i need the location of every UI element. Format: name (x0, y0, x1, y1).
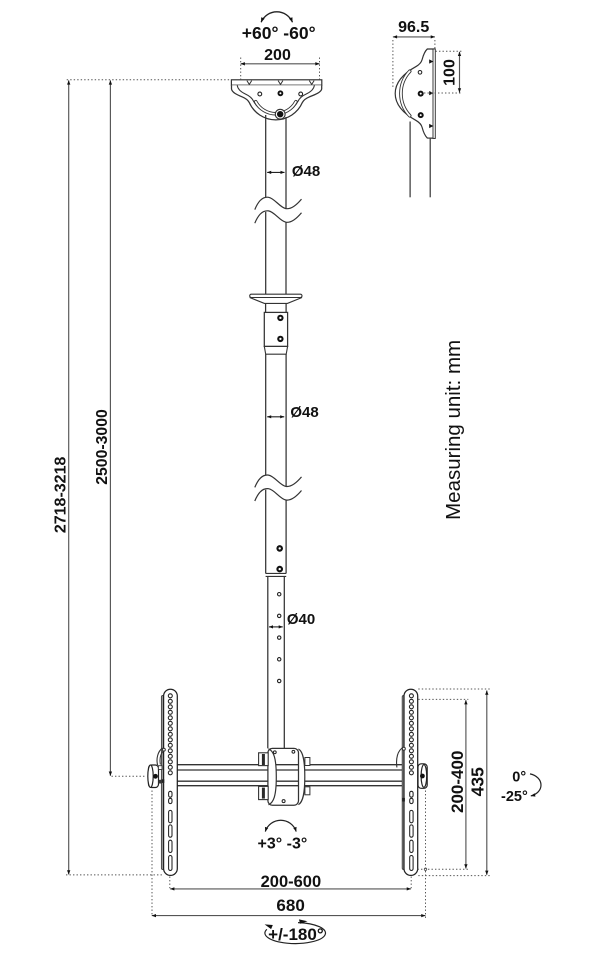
svg-text:100: 100 (442, 59, 459, 86)
svg-text:Measuring unit: mm: Measuring unit: mm (442, 340, 465, 520)
svg-text:435: 435 (468, 767, 488, 796)
svg-text:200-600: 200-600 (261, 873, 322, 891)
svg-text:Ø48: Ø48 (290, 404, 318, 421)
svg-text:2500-3000: 2500-3000 (94, 409, 111, 485)
svg-text:0°: 0° (512, 769, 526, 785)
svg-text:96.5: 96.5 (398, 19, 429, 36)
svg-text:200-400: 200-400 (448, 751, 467, 813)
svg-text:200: 200 (264, 47, 291, 64)
svg-text:2718-3218: 2718-3218 (53, 457, 70, 534)
svg-text:+/-180°: +/-180° (268, 925, 324, 944)
svg-text:Ø40: Ø40 (287, 611, 315, 628)
svg-text:Ø48: Ø48 (292, 163, 320, 180)
svg-text:-25°: -25° (501, 789, 528, 805)
svg-text:+60° -60°: +60° -60° (242, 23, 316, 43)
svg-text:+3° -3°: +3° -3° (258, 835, 308, 852)
svg-text:680: 680 (276, 896, 304, 915)
